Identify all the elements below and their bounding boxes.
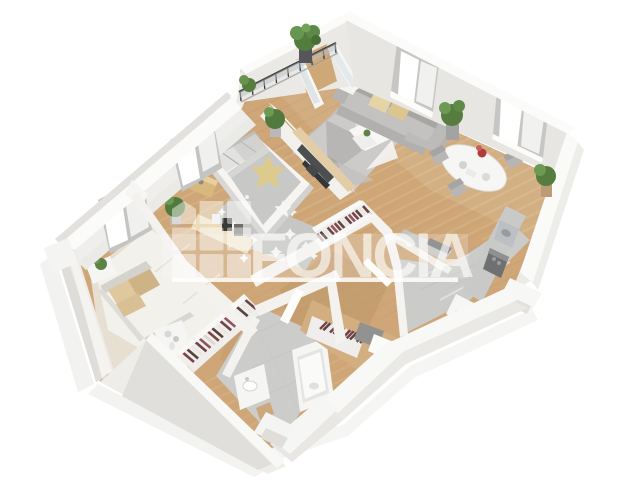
- svg-text:FONCIA: FONCIA: [249, 221, 473, 291]
